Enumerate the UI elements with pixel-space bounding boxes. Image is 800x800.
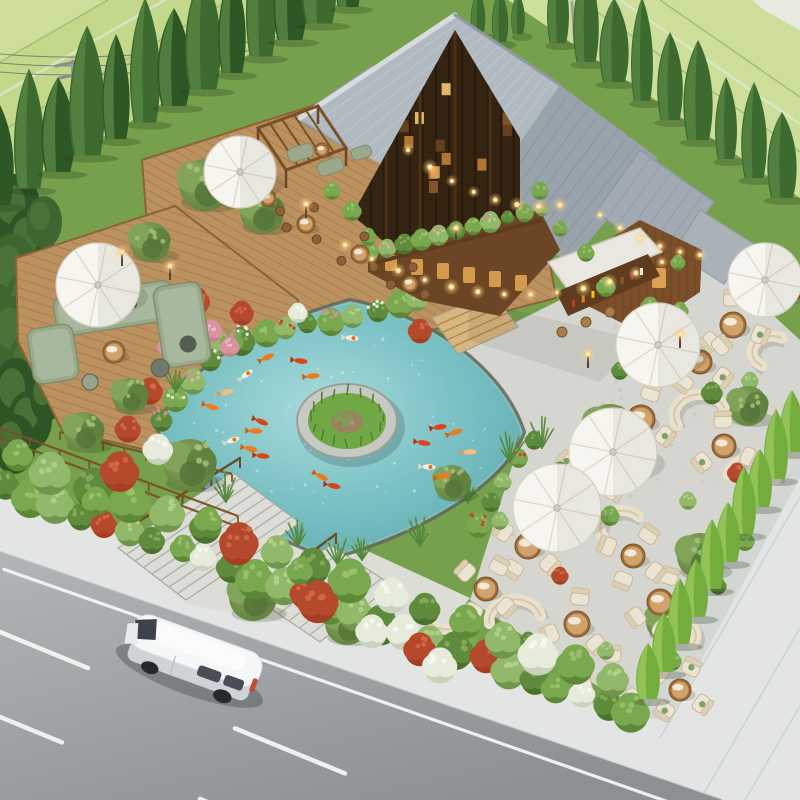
wood-chair	[387, 280, 396, 289]
warm-light	[601, 273, 618, 290]
wood-chair	[276, 207, 285, 216]
bar-bottle	[572, 300, 575, 307]
pouf	[180, 336, 196, 352]
warm-light	[524, 288, 537, 301]
wood-chair	[337, 256, 346, 265]
warm-light	[672, 326, 688, 342]
warm-light	[509, 196, 525, 212]
patio-chair	[570, 587, 590, 606]
garden-cafe-aerial-render	[0, 0, 800, 800]
warm-light	[674, 246, 686, 258]
warm-light	[402, 144, 415, 157]
wood-chair	[282, 223, 291, 232]
warm-light	[632, 230, 647, 245]
warm-light	[422, 159, 439, 176]
white-umbrella	[728, 243, 800, 317]
warm-light	[656, 256, 669, 269]
warm-light	[419, 274, 432, 287]
wood-chair	[312, 235, 321, 244]
wood-chair	[421, 290, 430, 299]
warm-light	[594, 209, 607, 222]
warm-light	[575, 280, 592, 297]
wood-chair	[408, 263, 417, 272]
warm-light	[653, 239, 667, 253]
render-stage	[0, 0, 800, 800]
bar-stool	[581, 317, 591, 327]
warm-light	[338, 238, 352, 252]
patio-chair	[714, 411, 733, 429]
warm-light	[114, 244, 130, 260]
warm-light	[162, 258, 178, 274]
pouf	[151, 359, 169, 377]
warm-light	[470, 284, 485, 299]
warm-light	[531, 199, 546, 214]
warm-light	[488, 193, 502, 207]
bar-stool	[557, 327, 567, 337]
warm-light	[366, 253, 378, 265]
warm-light	[498, 288, 511, 301]
warm-light	[448, 220, 464, 236]
bar-bottle	[591, 291, 594, 298]
warm-light	[446, 175, 458, 187]
bar-stool	[605, 307, 615, 317]
warm-light	[693, 248, 707, 262]
warm-light	[391, 263, 406, 278]
warm-light	[552, 197, 568, 213]
bar-bottle	[621, 277, 624, 284]
warm-light	[551, 287, 563, 299]
warm-light	[613, 221, 626, 234]
warm-light	[468, 186, 480, 198]
wood-chair	[360, 232, 369, 241]
warm-light	[628, 266, 643, 281]
warm-light	[298, 196, 314, 212]
pouf	[82, 374, 98, 390]
lounge-sofa	[26, 323, 80, 386]
warm-light	[443, 278, 460, 295]
warm-light	[580, 346, 596, 362]
